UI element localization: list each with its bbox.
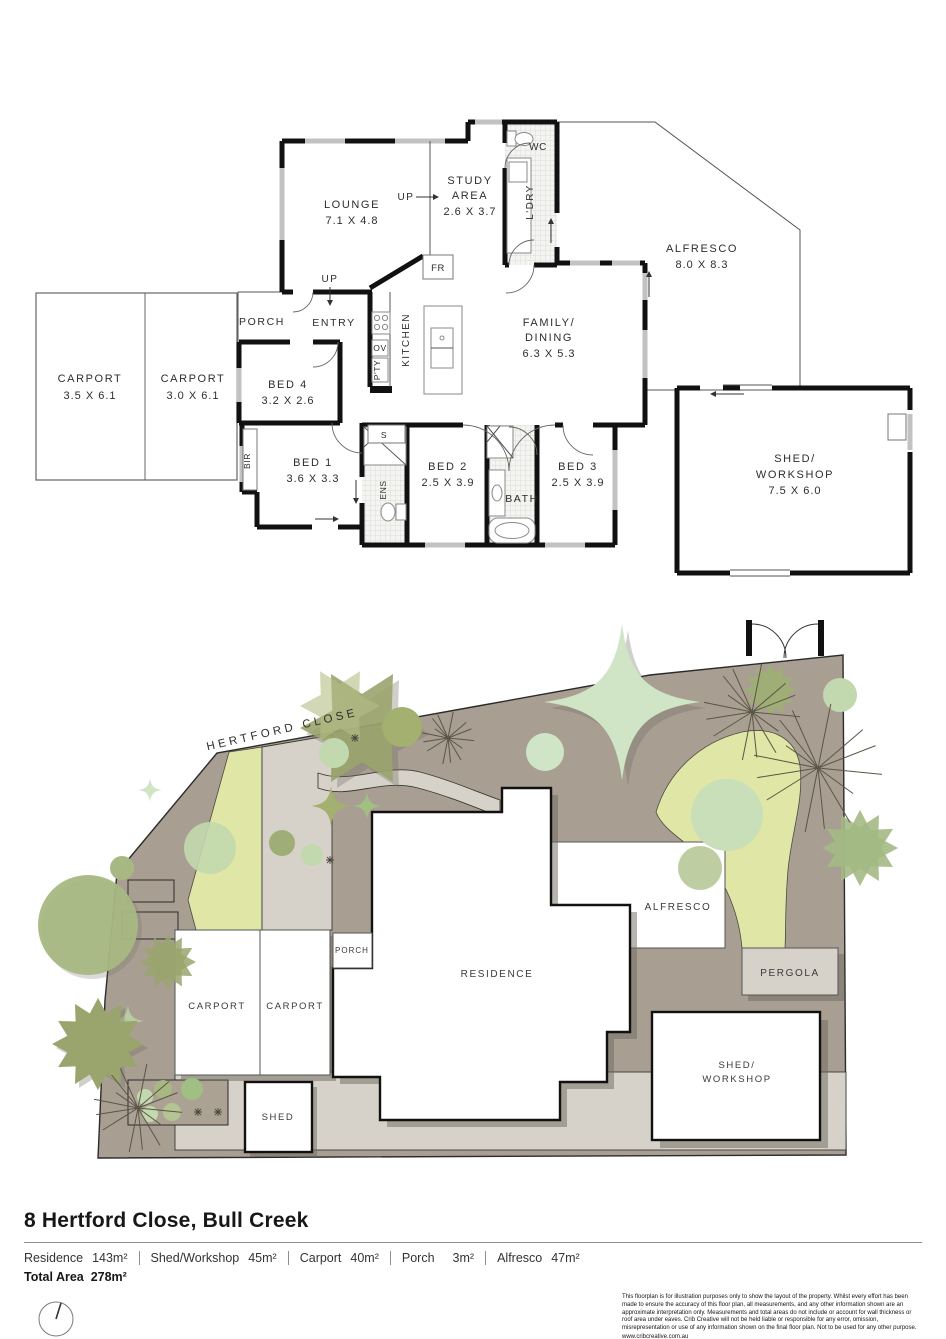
lounge-label: LOUNGE xyxy=(324,199,380,211)
website-link: www.cribcreative.com.au xyxy=(622,1334,922,1339)
ldry-label: L'DRY xyxy=(525,184,536,219)
bath-label: BATH xyxy=(505,493,539,505)
s-label: S xyxy=(381,430,387,440)
lounge-dims: 7.1 X 4.8 xyxy=(325,215,378,227)
alfresco-dims: 8.0 X 8.3 xyxy=(675,259,728,271)
alfresco-label: ALFRESCO xyxy=(666,243,738,255)
total-area: Total Area 278m² xyxy=(24,1270,922,1284)
site-carport2-label: CARPORT xyxy=(266,1001,323,1012)
bed2-dims: 2.5 X 3.9 xyxy=(421,477,474,489)
area-label: Carport xyxy=(300,1251,342,1265)
bed3-label: BED 3 xyxy=(558,461,598,473)
footer: 8 Hertford Close, Bull Creek Residence14… xyxy=(0,1165,946,1339)
site-residence-label: RESIDENCE xyxy=(461,969,534,980)
porch-label: PORCH xyxy=(239,316,285,328)
study-dims: 2.6 X 3.7 xyxy=(443,206,496,218)
shed-dims: 7.5 X 6.0 xyxy=(768,485,821,497)
area-value: 3m² xyxy=(453,1251,475,1265)
ens-label: ENS xyxy=(378,480,388,499)
gate xyxy=(746,620,824,658)
bed4-label: BED 4 xyxy=(268,379,308,391)
carport-outlines xyxy=(36,293,237,480)
carport1-dims: 3.5 X 6.1 xyxy=(63,390,116,402)
site-porch-label: PORCH xyxy=(335,946,369,955)
floorplan-page: LOUNGE 7.1 X 4.8 STUDY AREA 2.6 X 3.7 UP… xyxy=(0,0,946,1339)
disclaimer: This floorplan is for illustration purpo… xyxy=(622,1294,922,1339)
site-shed-workshop-label-2: WORKSHOP xyxy=(702,1074,771,1085)
carport1-label: CARPORT xyxy=(58,373,123,385)
shed-label-1: SHED/ xyxy=(774,453,816,465)
family-label-1: FAMILY/ xyxy=(523,317,576,329)
area-value: 40m² xyxy=(350,1251,378,1265)
floor-plan: LOUNGE 7.1 X 4.8 STUDY AREA 2.6 X 3.7 UP… xyxy=(0,0,946,592)
area-summary: Residence143m² Shed/Workshop45m² Carport… xyxy=(24,1243,922,1267)
area-value: 47m² xyxy=(551,1251,579,1265)
study-label-2: AREA xyxy=(452,190,488,202)
shed-label-2: WORKSHOP xyxy=(756,469,834,481)
area-label: Shed/Workshop xyxy=(151,1251,240,1265)
area-item-carport: Carport40m² xyxy=(300,1251,391,1265)
total-label: Total Area xyxy=(24,1270,84,1284)
bed2-label: BED 2 xyxy=(428,461,468,473)
area-label: Residence xyxy=(24,1251,83,1265)
total-value: 278m² xyxy=(91,1270,127,1284)
fr-label: FR xyxy=(431,263,445,274)
site-pergola-label: PERGOLA xyxy=(760,968,820,979)
footer-bottom-row: This floorplan is for illustration purpo… xyxy=(24,1294,922,1339)
bed1-label: BED 1 xyxy=(293,457,333,469)
up-label-1: UP xyxy=(397,192,414,203)
area-item-alfresco: Alfresco47m² xyxy=(497,1251,591,1265)
study-label-1: STUDY xyxy=(447,175,492,187)
pty-label: P'TY xyxy=(372,360,382,381)
site-plan: HERTFORD CLOSE RESIDENCE ALFRESCO PERGOL… xyxy=(0,592,946,1165)
family-label-2: DINING xyxy=(525,332,573,344)
bed4-dims: 3.2 X 2.6 xyxy=(261,395,314,407)
bed3-dims: 2.5 X 3.9 xyxy=(551,477,604,489)
carport2-label: CARPORT xyxy=(161,373,226,385)
area-label: Porch xyxy=(402,1251,435,1265)
area-item-shed-workshop: Shed/Workshop45m² xyxy=(151,1251,289,1265)
entry-label: ENTRY xyxy=(312,317,355,329)
driveway xyxy=(262,735,332,930)
carport2-dims: 3.0 X 6.1 xyxy=(166,390,219,402)
bed1-dims: 3.6 X 3.3 xyxy=(286,473,339,485)
site-shed-label: SHED xyxy=(262,1112,295,1123)
area-value: 45m² xyxy=(248,1251,276,1265)
bir-label: BIR xyxy=(242,453,252,469)
north-compass-icon xyxy=(34,1294,78,1339)
area-item-porch: Porch3m² xyxy=(402,1251,486,1265)
ov-label: OV xyxy=(373,343,386,353)
up-label-2: UP xyxy=(321,274,338,285)
page-title: 8 Hertford Close, Bull Creek xyxy=(24,1165,922,1233)
site-carport1-label: CARPORT xyxy=(188,1001,245,1012)
site-shed-workshop-label-1: SHED/ xyxy=(718,1060,755,1071)
area-value: 143m² xyxy=(92,1251,127,1265)
site-alfresco-label: ALFRESCO xyxy=(645,902,712,913)
disclaimer-text: This floorplan is for illustration purpo… xyxy=(622,1294,922,1333)
area-item-residence: Residence143m² xyxy=(24,1251,140,1265)
area-label: Alfresco xyxy=(497,1251,542,1265)
kitchen-label: KITCHEN xyxy=(401,313,412,367)
family-dims: 6.3 X 5.3 xyxy=(522,348,575,360)
wc-label: WC xyxy=(529,142,547,153)
